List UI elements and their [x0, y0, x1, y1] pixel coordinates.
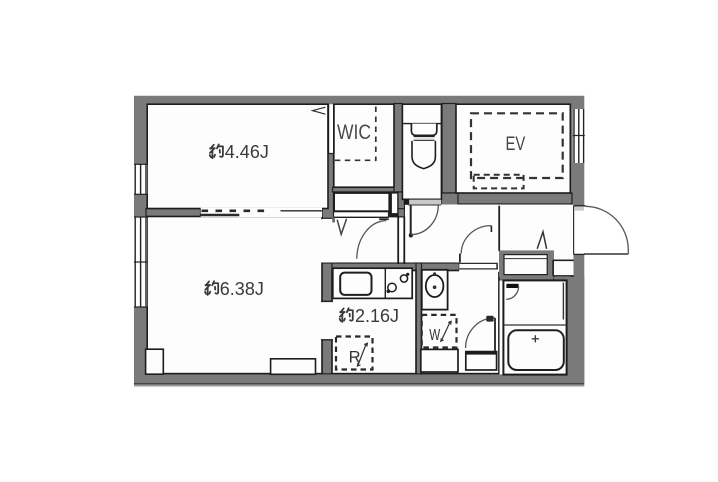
svg-text:W: W: [429, 327, 440, 344]
svg-text:WIC: WIC: [337, 120, 371, 144]
svg-text:6.38J: 6.38J: [220, 279, 264, 299]
svg-text:2.16J: 2.16J: [355, 306, 399, 326]
svg-text:4.46J: 4.46J: [225, 142, 269, 162]
svg-text:EV: EV: [506, 134, 526, 155]
